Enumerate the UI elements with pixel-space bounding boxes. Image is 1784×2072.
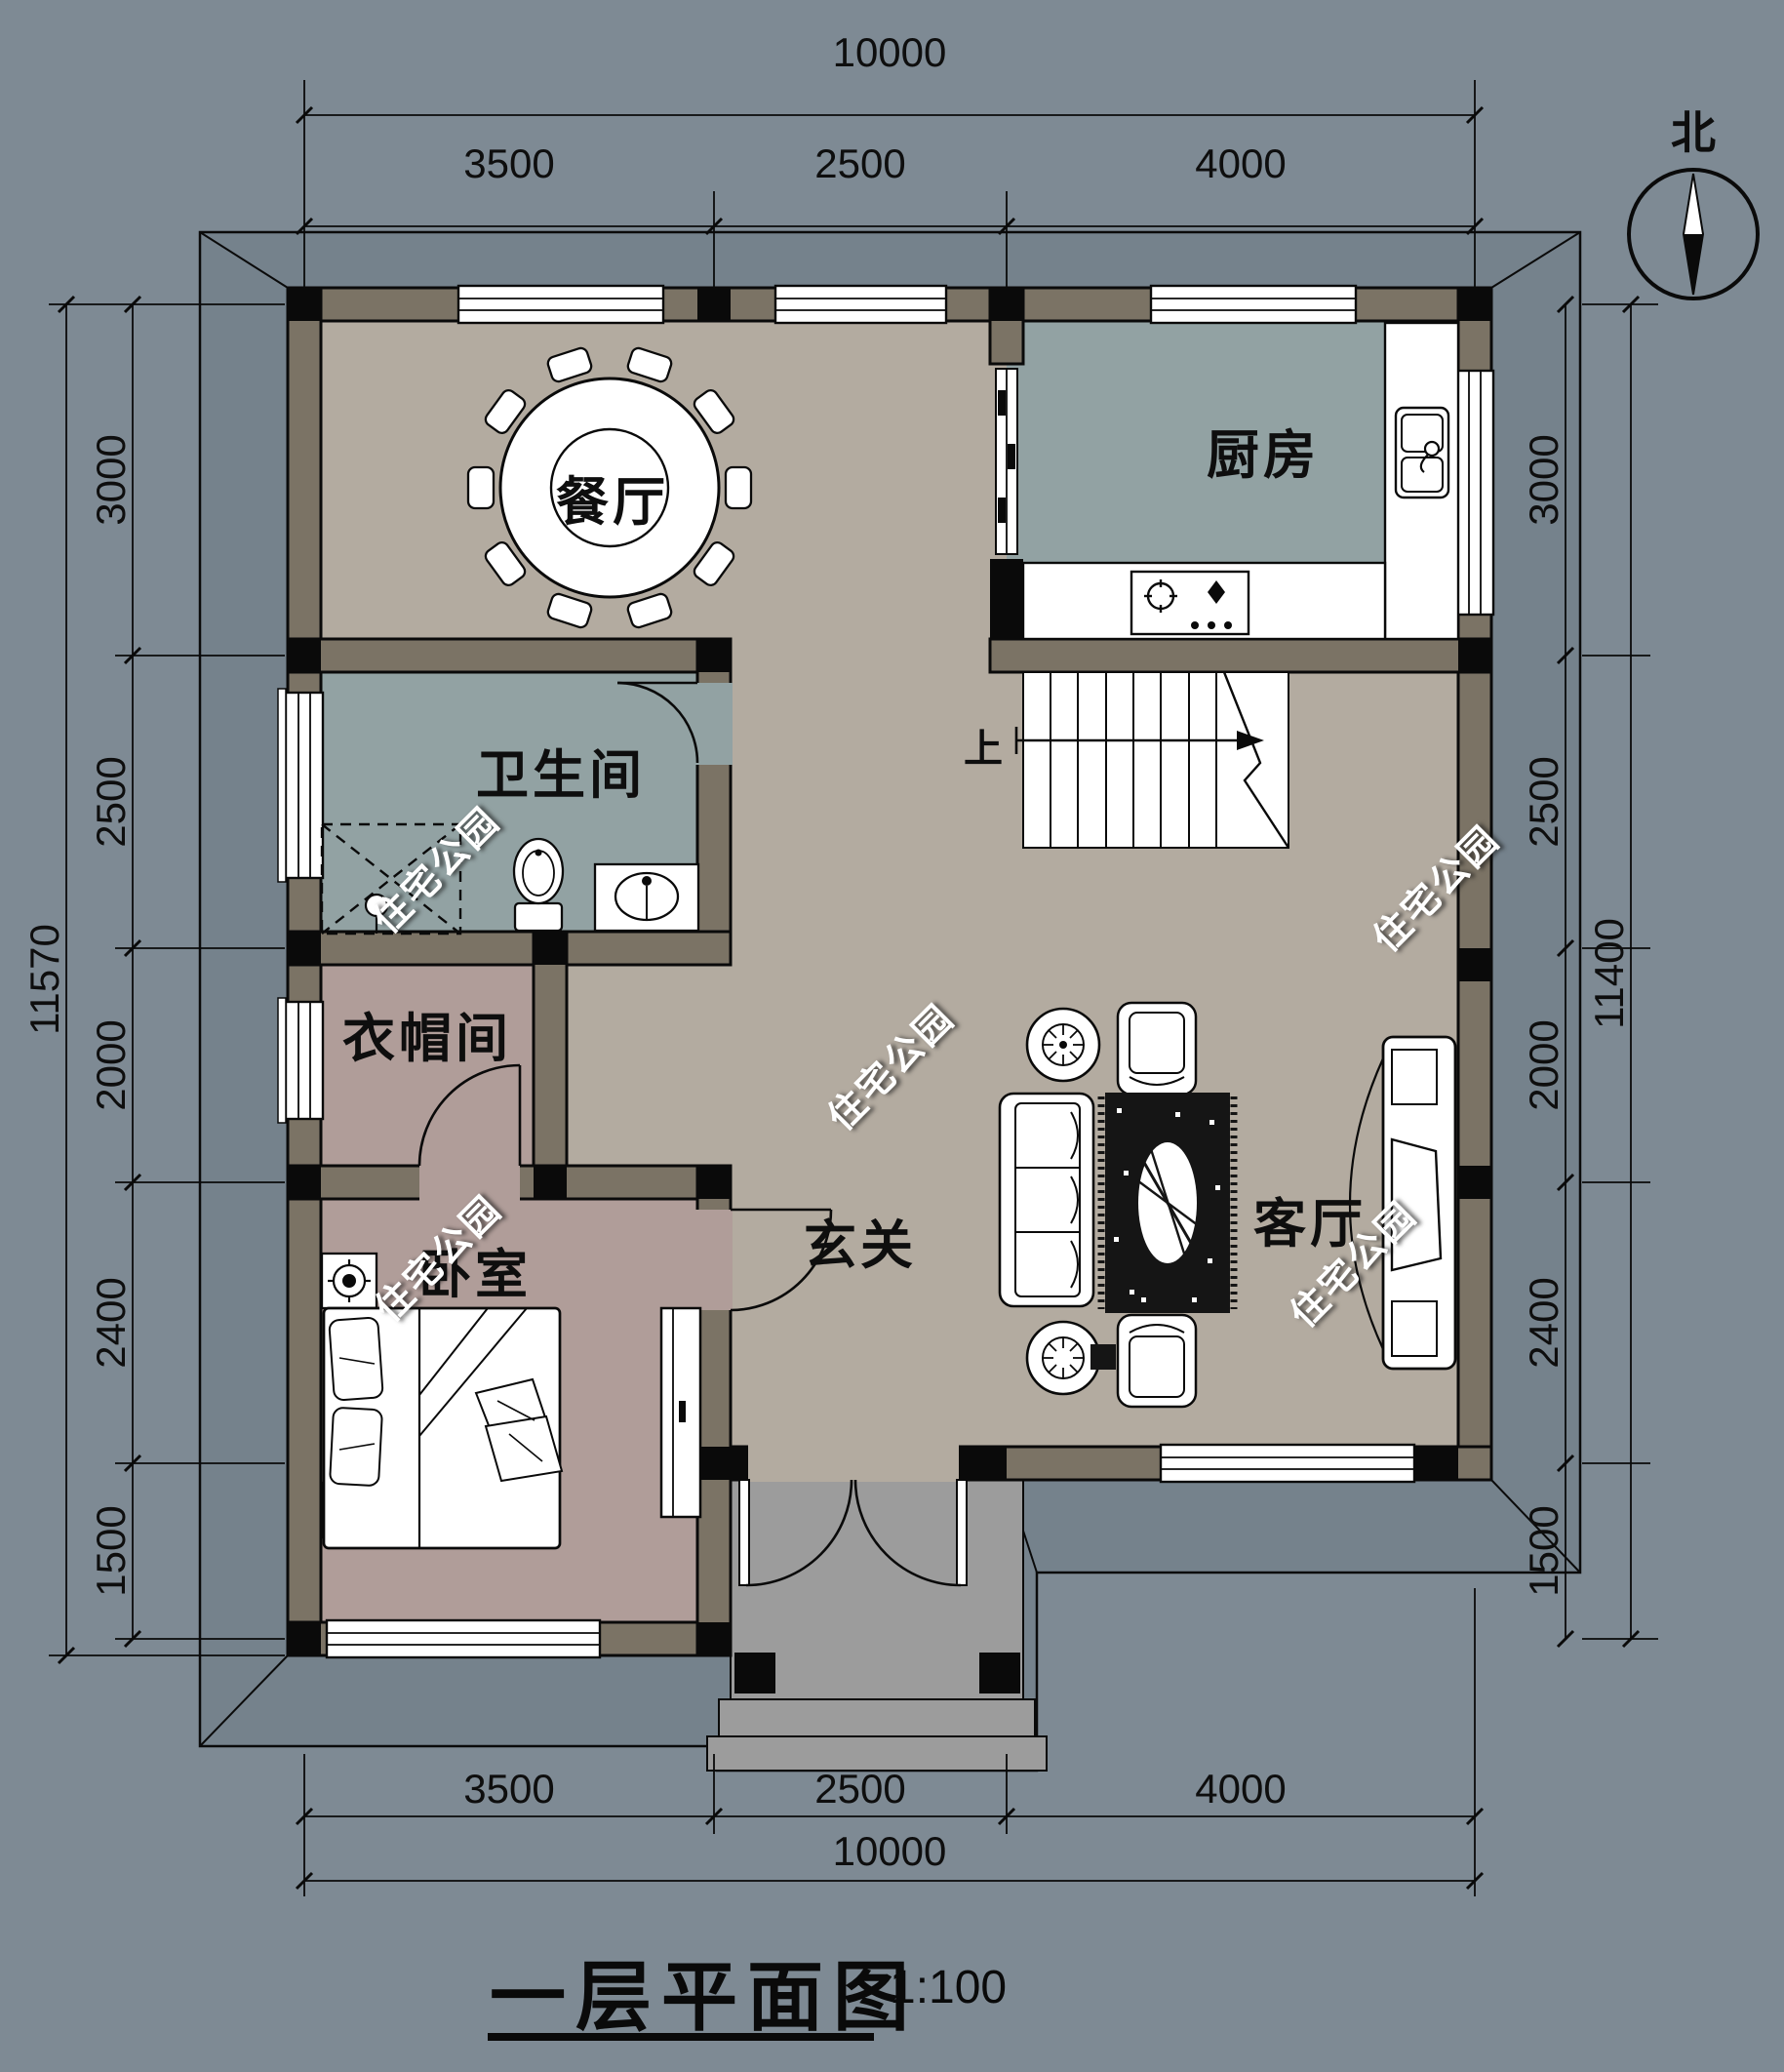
wardrobe <box>661 1308 700 1517</box>
window-bathroom-left <box>278 689 323 882</box>
dim-right-seg-4: 2400 <box>1521 1215 1567 1430</box>
room-label-hall: 玄关 <box>763 1202 958 1279</box>
north-label: 北 <box>1664 98 1723 162</box>
north-compass <box>1629 170 1758 299</box>
dim-bottom-seg-1: 3500 <box>402 1766 616 1813</box>
dim-top-seg-3: 4000 <box>1133 140 1348 187</box>
window-dining-top-2 <box>775 286 946 323</box>
dim-right-seg-3: 2000 <box>1521 958 1567 1173</box>
bathroom-sink-icon <box>595 864 698 931</box>
window-living-bottom <box>1161 1445 1414 1482</box>
drawing-scale: 1:100 <box>890 1961 1007 2014</box>
sliding-door-kitchen <box>996 369 1017 554</box>
dim-bottom-overall: 10000 <box>782 1828 997 1875</box>
stairs-up-label: 上 <box>954 717 1012 774</box>
dim-bottom-seg-3: 4000 <box>1133 1766 1348 1813</box>
room-label-dining: 餐厅 <box>515 458 710 536</box>
kitchen-sink-icon <box>1396 408 1448 498</box>
armchair-top-icon <box>1118 1003 1196 1095</box>
stove-icon <box>1131 572 1249 634</box>
wall-bathroom-top <box>288 639 731 672</box>
armchair-bottom-icon <box>1118 1315 1196 1407</box>
floor-plan-page: { "drawing": { "title": "一层平面图", "scale"… <box>0 0 1784 2072</box>
dim-right-overall: 11400 <box>1586 866 1633 1081</box>
title-underline <box>488 2033 874 2041</box>
toilet-icon <box>514 839 563 931</box>
dim-left-seg-4: 2400 <box>88 1215 135 1430</box>
stairs <box>1016 672 1288 848</box>
dim-top-seg-1: 3500 <box>402 140 616 187</box>
sofa-three-seat-icon <box>1000 1094 1093 1306</box>
dim-left-seg-3: 2000 <box>88 958 135 1173</box>
dim-bottom-seg-2: 2500 <box>753 1766 968 1813</box>
dim-left-seg-5: 1500 <box>88 1444 135 1658</box>
window-dining-top <box>458 286 663 323</box>
dim-right-seg-5: 1500 <box>1521 1444 1567 1658</box>
porch-step-1 <box>719 1699 1035 1736</box>
window-kitchen-right <box>1456 371 1493 615</box>
dim-left-seg-1: 3000 <box>88 373 135 587</box>
dim-top-seg-2: 2500 <box>753 140 968 187</box>
window-kitchen-top <box>1151 286 1356 323</box>
dim-left-seg-2: 2500 <box>88 695 135 909</box>
wall-kitchen-bottom <box>990 639 1491 672</box>
drawing-title: 一层平面图 <box>490 1936 919 2046</box>
window-bedroom-bottom <box>327 1620 600 1657</box>
wall-left <box>288 288 321 1655</box>
dim-top-overall: 10000 <box>782 29 997 76</box>
dim-left-overall: 11570 <box>21 872 68 1087</box>
dim-right-seg-1: 3000 <box>1521 373 1567 587</box>
plant-table-top-icon <box>1027 1009 1099 1081</box>
room-label-bathroom: 卫生间 <box>415 732 707 809</box>
room-label-cloakroom: 衣帽间 <box>281 995 574 1072</box>
room-label-kitchen: 厨房 <box>1166 412 1361 489</box>
